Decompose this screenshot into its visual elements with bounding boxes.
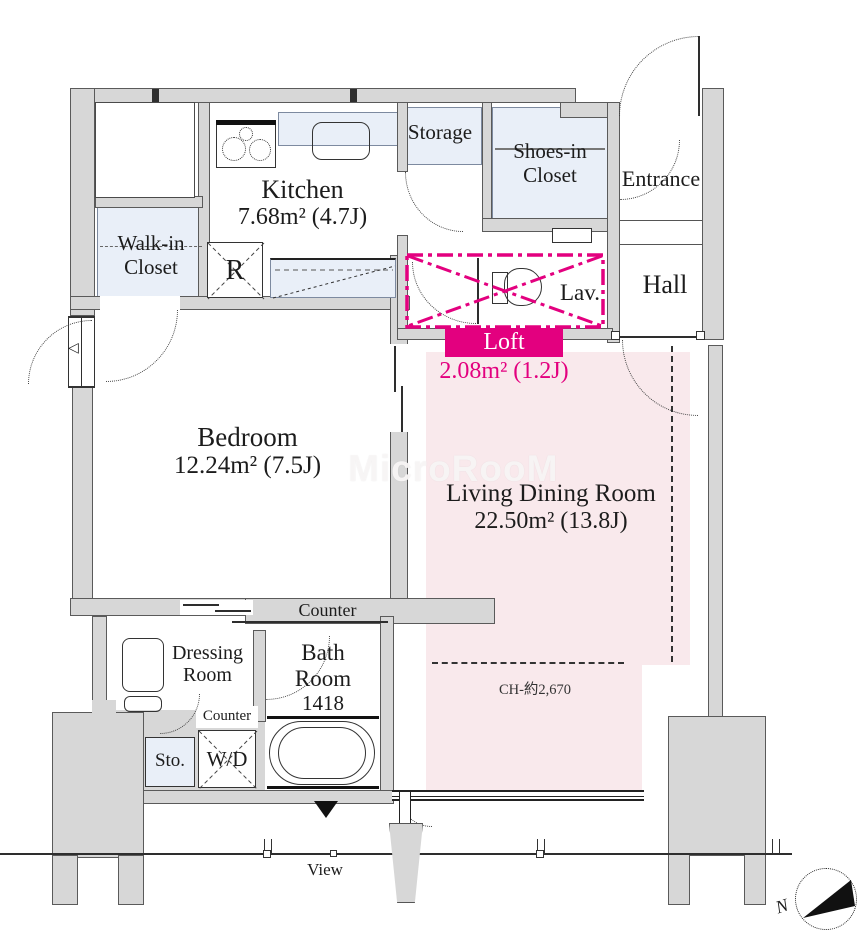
wall-left-upper [70,88,95,316]
wall-top [70,88,576,103]
washbasin-icon [122,638,164,692]
wall-notch [350,89,357,102]
bedroom-label: Bedroom 12.24m² (7.5J) [130,422,365,480]
storage-label: Storage [398,121,482,145]
compass-needle [797,870,857,930]
floor-plan: ◁ [0,0,864,946]
door-frame [611,331,620,340]
pillar-bl-leg-right [118,855,144,905]
balcony-partition [389,823,423,903]
wall-left-mid [72,386,93,600]
counter-small-label: Counter [196,708,258,725]
alcove [95,102,195,198]
railing-post [772,839,780,854]
lavatory-label: Lav. [550,280,610,306]
kitchen-area: 7.68m² (4.7J) [210,204,395,231]
window-swing-arc [28,320,92,384]
loft-extent-dashed-line [432,662,624,664]
railing-joint [536,850,544,858]
bedroom-door-arc [106,310,178,382]
counter-edge [232,621,388,623]
hall-label: Hall [626,270,704,299]
compass-north-label: N [773,895,791,919]
slider-panel [215,610,251,612]
storage-door-arc [405,172,463,232]
counter-label: Counter [255,600,400,620]
slider-panel [394,346,396,392]
balcony-partition-wall [399,792,411,824]
wall-shoes-left [482,102,492,227]
loft-label: Loft [445,328,563,357]
pillar-br-leg-right [744,854,766,905]
bed-living-slider-gap [390,344,408,432]
washbasin-lower [124,696,162,712]
wall-bath-right [380,616,394,802]
view-label: View [290,860,360,879]
wall-notch [152,89,159,102]
bed-dressing-slider-gap [180,600,253,615]
bathtub-icon [267,716,379,790]
wall-right-lower [708,345,723,717]
railing-joint [263,850,271,858]
bath-room-label: Bath Room 1418 [268,640,378,715]
loft-area-label: 2.08m² (1.2J) [409,358,599,385]
storage-small-label: Sto. [145,750,195,771]
ceiling-height-label: CH-約2,670 [440,682,630,698]
hall-living-door-leaf [618,336,700,338]
pillar-bottom-right [668,716,766,856]
entrance-label: Entrance [616,167,706,192]
wall-entrance-hall-left [607,102,620,343]
lav-niche [552,228,592,243]
bedroom-door-gap [100,296,180,310]
refrigerator-label: R [207,255,263,286]
slider-panel [401,386,403,432]
wall-right-upper [702,88,724,340]
railing-joint [330,850,337,857]
slider-panel [183,604,219,606]
kitchen-label: Kitchen 7.68m² (4.7J) [210,175,395,231]
entrance-step-line [620,244,702,245]
walk-in-closet-label: Walk-in Closet [97,232,205,279]
washer-dryer-label: W/D [198,748,256,772]
entrance-door-arc [619,36,699,116]
pillar-bl-leg-left [52,855,78,905]
living-balcony-window [392,790,644,801]
sink-icon [312,122,370,160]
dressing-room-label: Dressing Room [160,642,255,687]
kitchen-lower-counter [270,258,396,298]
watermark: MicroRooM [348,448,558,490]
wall-shoes-bottom [482,218,616,232]
entrance-step-line [620,220,702,221]
shoes-closet-label: Shoes-in Closet [492,140,608,187]
loft-name: Loft [483,329,524,355]
pillar-br-leg-left [668,854,690,905]
pillar-bl-stem [92,700,116,714]
stove-icon [216,120,276,168]
door-frame [696,331,705,340]
kitchen-name: Kitchen [210,175,395,204]
pillar-bottom-left [52,712,144,858]
entrance-door-leaf [698,36,700,116]
view-direction-triangle [314,801,338,818]
